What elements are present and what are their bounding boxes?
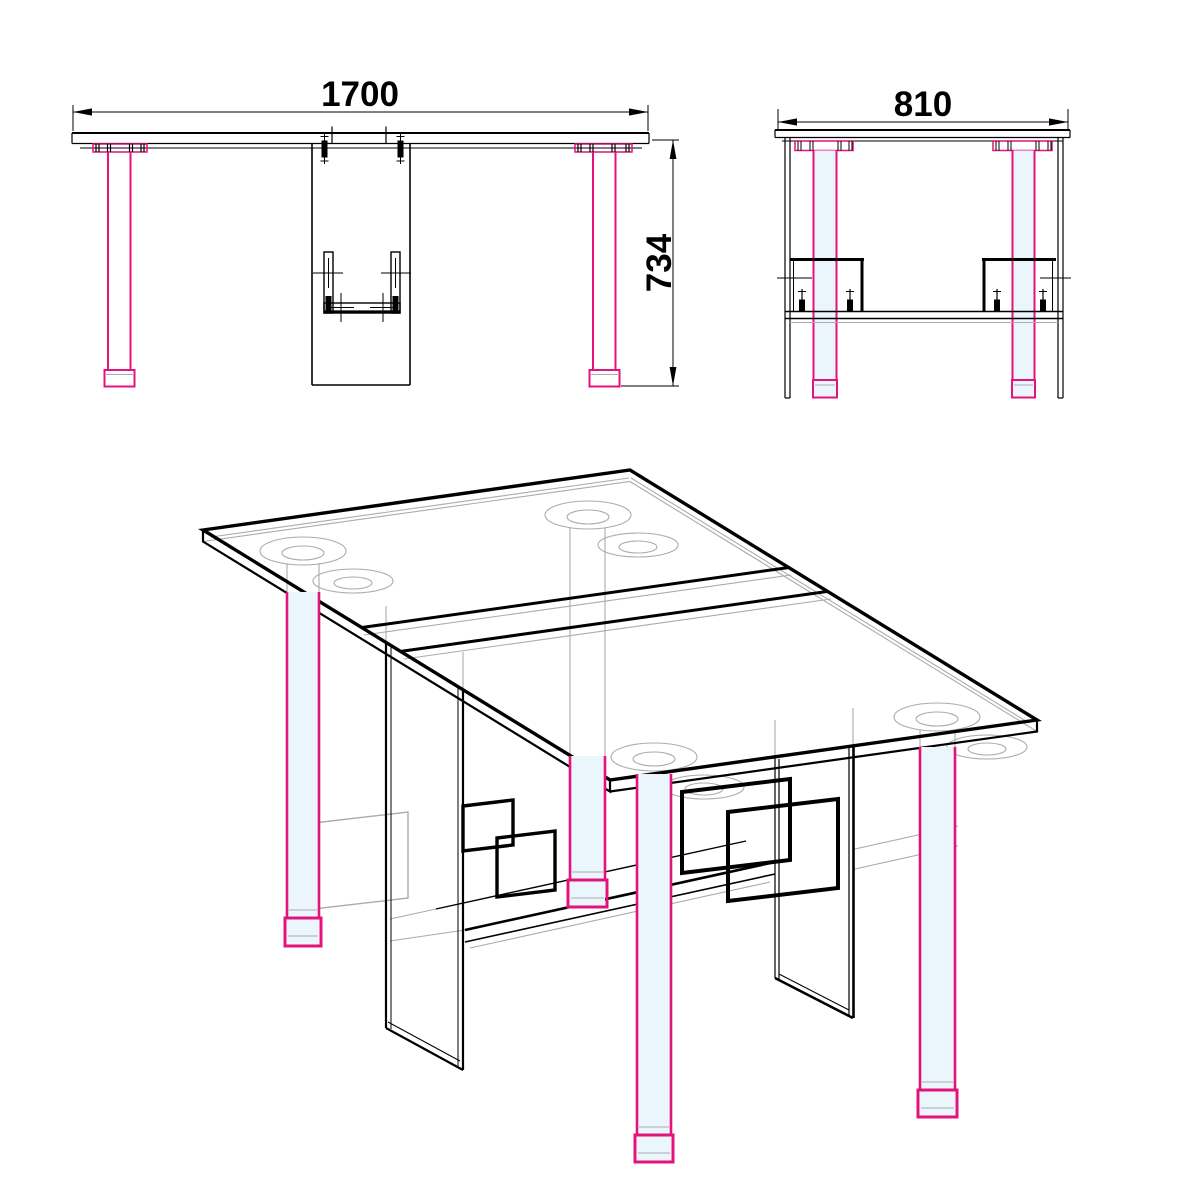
technical-drawing: 1700 [0, 0, 1200, 1200]
right-support-panel [775, 746, 854, 1018]
arrow-left-icon [778, 118, 797, 125]
front-center-support [312, 134, 411, 385]
bracket [463, 800, 513, 851]
iso-leg-front-center [635, 774, 673, 1162]
bracket [728, 799, 838, 901]
u-bracket [313, 252, 411, 322]
bolt-icon [1039, 289, 1047, 312]
side-leg-plates [795, 141, 1052, 151]
bracket [682, 779, 790, 873]
cam-bolt-icon [321, 134, 329, 164]
hidden-bracket [305, 812, 408, 910]
iso-leg-back-left [568, 756, 607, 907]
arrow-right-icon [629, 108, 648, 115]
height-dimension-label: 734 [640, 233, 679, 292]
side-view: 810 [775, 85, 1071, 398]
cam-bolt-icon [397, 134, 405, 164]
side-right-leg [1012, 151, 1035, 398]
left-support-panel [386, 643, 463, 1070]
front-left-leg [93, 144, 147, 387]
leg-foot [105, 370, 135, 387]
leg-foot [590, 370, 620, 387]
side-tabletop [775, 130, 1070, 141]
dimension-depth-810: 810 [778, 85, 1068, 131]
dimension-width-1700: 1700 [73, 75, 648, 131]
iso-leg-front-right [918, 747, 957, 1117]
bracket [497, 831, 555, 897]
arrow-up-icon [670, 140, 677, 159]
depth-dimension-label: 810 [894, 85, 952, 124]
isometric-view [203, 470, 1037, 1162]
dimension-height-734: 734 [621, 140, 679, 386]
front-tabletop [72, 127, 649, 149]
arrow-left-icon [73, 108, 92, 115]
iso-leg-front-left [285, 592, 321, 946]
bolt-icon [798, 289, 806, 312]
bolt-icon [993, 289, 1001, 312]
tabletop-face [203, 470, 1037, 780]
arrow-down-icon [670, 367, 677, 386]
bolt-icon [846, 289, 854, 312]
leg-mount-plate [993, 141, 1052, 151]
front-view: 1700 [72, 75, 679, 387]
arrow-right-icon [1049, 118, 1068, 125]
leg-mount-plate [795, 141, 853, 151]
side-left-leg [813, 151, 837, 398]
width-dimension-label: 1700 [321, 75, 399, 114]
front-right-leg [575, 144, 632, 387]
drawing-canvas: 1700 [0, 0, 1200, 1200]
